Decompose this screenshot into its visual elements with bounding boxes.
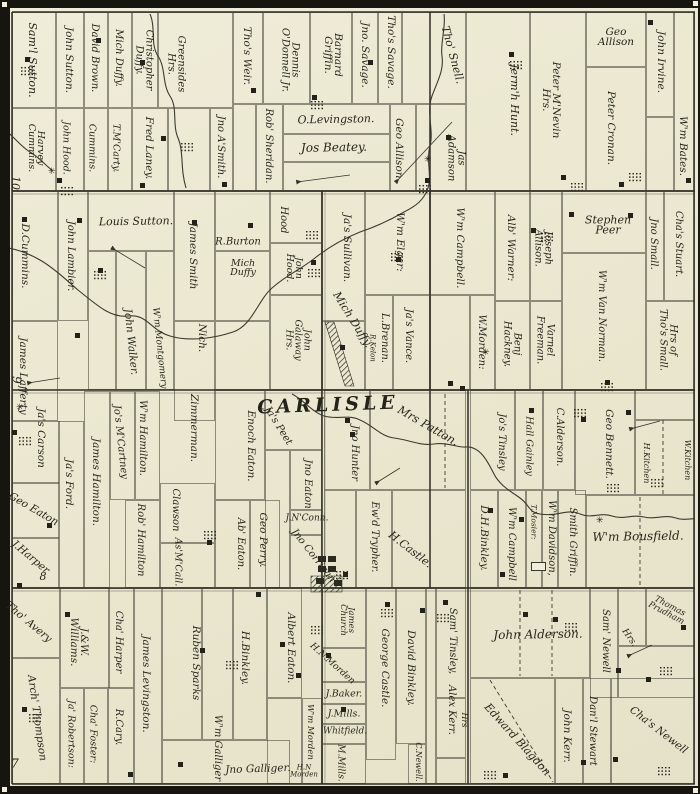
parcel-owner-label: H.Binkley. <box>239 631 249 685</box>
parcel-owner-label: Varnel Freeman. <box>536 316 555 365</box>
parcel-owner-label: David Brown. <box>89 24 99 93</box>
parcel-owner-label: Thomas Prudham <box>647 594 689 627</box>
parcel-owner-label: John Alderson. <box>493 629 582 642</box>
parcel-owner-label: John Walker. <box>122 308 139 375</box>
parcel-owner-label: Dan'l Stewart <box>587 696 597 766</box>
lot-number-label: 7 <box>11 758 19 769</box>
parcel-owner-label: Rob' Hamilton <box>135 504 145 577</box>
parcel-owner-label: Harvey Cummins. <box>27 124 45 172</box>
lot-number-label: 8 <box>40 572 47 582</box>
parcel-owner-label: Hrs. <box>620 628 638 649</box>
parcel-owner-label: Zimmerman. <box>188 394 198 462</box>
parcel-owner-label: Benj Hackney. <box>503 321 522 367</box>
parcel-owner-label: T.Mosier: <box>530 504 537 539</box>
parcel-owner-label: W'm Galliger <box>212 715 222 781</box>
parcel-owner-label: H.Kitchen <box>642 443 650 484</box>
frame-corner-mark <box>2 2 7 7</box>
parcel-owner-label: Barnard Griffin. <box>322 33 342 77</box>
parcel-owner-label: Ja's Ford. <box>63 459 73 509</box>
parcel-owner-label: Ab' Eaton. <box>235 518 245 570</box>
parcel-owner-label: J.Baker. <box>326 689 363 698</box>
parcel-owner-label: Ruben Sparks <box>190 626 200 701</box>
parcel-owner-label: Jno Small. <box>648 218 658 270</box>
parcel-owner-label: Tho' Snell. <box>439 25 464 85</box>
parcel-owner-label: J.N'Conn. <box>286 515 329 524</box>
parcel-owner-label: Peter Cronan. <box>605 91 615 165</box>
parcel-owner-label: Louis Sutton. <box>99 216 174 228</box>
parcel-owner-label: H.N.Morden <box>308 642 356 686</box>
parcel-owner-label: W'm Campbell. <box>454 208 464 289</box>
parcel-owner-label: Hrs of Tho's Small. <box>659 309 678 371</box>
parcel-owner-label: Sam' Tinsley, <box>447 608 457 674</box>
parcel-owner-label: Alex Kerr. <box>446 685 456 735</box>
parcel-owner-label: Joseph Allison. <box>534 229 553 267</box>
parcel-owner-label: Jno Corrigan <box>289 528 336 585</box>
parcel-owner-label: Arch' Thompson <box>25 674 47 761</box>
parcel-owner-label: Mich Duffy. <box>113 29 123 87</box>
parcel-owner-label: Jno Galliger. <box>225 764 291 776</box>
parcel-owner-label: C.Alderson. <box>554 408 564 467</box>
parcel-owner-label: Tho's Weir. <box>241 27 251 85</box>
parcel-owner-label: Geo Perry. <box>257 513 267 568</box>
parcel-owner-label: As'M'Call. <box>173 538 182 587</box>
parcel-owner-label: H.Castle. <box>386 530 433 570</box>
parcel-owner-label: Greensides Hrs. <box>167 36 186 93</box>
parcel-owner-label: James Hamilton. <box>90 438 100 526</box>
parcel-owner-label: Geo Bennett. <box>603 409 613 479</box>
parcel-owner-label: Mich Duffy. <box>331 290 373 349</box>
parcel-owner-label: W'm Davidson, <box>546 500 556 576</box>
parcel-owner-label: James Levingston. <box>140 635 150 732</box>
parcel-owner-label: Sam' Newell <box>600 609 610 673</box>
parcel-owner-label: Clawson <box>170 489 180 532</box>
parcel-owner-label: Ja' Robertson: <box>66 700 75 768</box>
parcel-owner-label: Cha's Newell <box>627 706 688 757</box>
parcel-owner-label: Geo Allison. <box>393 118 403 182</box>
parcel-owner-label: David Binkley. <box>405 630 415 706</box>
parcel-owner-label: W'm Campbell <box>506 507 516 581</box>
parcel-owner-label: W'm Bousfield. <box>592 531 683 544</box>
parcel-owner-label: George Castle. <box>379 628 389 707</box>
parcel-owner-label: W'm Morden <box>306 704 314 760</box>
parcel-owner-label: Smith Griffin. <box>567 507 577 576</box>
parcel-owner-label: Mrs Patton. <box>396 404 460 448</box>
frame-corner-mark <box>693 1 698 6</box>
parcel-owner-label: W'm Bates. <box>677 116 687 176</box>
parcel-owner-label: Ja's Sullivan. <box>341 214 351 282</box>
parcel-owner-label: Jo's M'Cartney <box>111 404 128 479</box>
parcel-owner-label: J.&W. Williams. <box>68 618 88 667</box>
parcel-owner-label: Albert Eaton. <box>285 612 295 683</box>
parcel-owner-label: Hrs <box>460 713 468 728</box>
parcel-owner-label: Jos Beatey. <box>301 142 367 155</box>
parcel-owner-label: Geo Allison <box>598 28 634 48</box>
parcel-owner-label: W'm Montgomery <box>150 307 167 389</box>
map-canvas: ✳✳✳✳✳ CARLISLE Sam'l Sutton.John Sutton.… <box>10 8 698 786</box>
parcel-owner-label: Rob' Sheridan. <box>263 108 273 183</box>
parcel-owner-label: Hood <box>278 206 288 233</box>
parcel-owner-label: D.H.Binkley. <box>478 505 488 571</box>
parcel-owner-label: James Church <box>339 604 355 636</box>
parcel-owner-label: Edward Blagdon <box>482 702 552 778</box>
parcel-owner-label: R.Kelon <box>369 334 376 362</box>
frame-corner-mark <box>693 788 698 793</box>
parcel-owner-label: Dennis O'Donnell Jr. <box>281 28 300 92</box>
parcel-owner-label: John Galaway Hrs. <box>284 319 311 360</box>
parcel-owner-label: Nich. <box>196 324 206 353</box>
parcel-owner-label: Hall Gainley <box>524 416 533 475</box>
parcel-owner-label: D.Cummins. <box>19 224 29 289</box>
parcel-owner-label: Geo Eaton <box>6 492 59 528</box>
parcel-owner-label: T.M'Carty. <box>111 124 120 173</box>
parcel-owner-label: John Irvine. <box>655 31 665 93</box>
parcel-owner-label: Jno. Savage. <box>359 22 369 88</box>
parcel-owner-label: W.Morden: <box>476 315 486 370</box>
parcel-owner-label: H.N Morden <box>290 764 318 777</box>
parcel-owner-label: R.Cary. <box>113 709 123 746</box>
parcel-owner-label: Ja's Vance. <box>403 309 413 363</box>
lot-number-label: 9 <box>10 376 21 384</box>
parcel-owner-label: Tho' Avery <box>3 601 53 645</box>
parcel-owner-label: Jno A'Smith. <box>215 116 225 179</box>
parcel-owner-label: L.Brenan. <box>379 313 389 363</box>
parcel-owner-label: Cummins. <box>87 124 96 172</box>
parcel-owner-label: Cha' Harper <box>113 611 123 674</box>
parcel-owner-label: Alb' Warner: <box>505 215 515 282</box>
parcel-owner-label: W.Kitchen <box>683 440 691 481</box>
parcel-owner-label: James Smith <box>187 223 197 290</box>
frame-corner-mark <box>2 787 7 792</box>
parcel-owner-label: W'm Van Norman. <box>596 270 606 362</box>
parcel-owner-label: Mich Duffy <box>230 259 256 277</box>
parcel-owner-label: O.Levingston. <box>298 114 375 126</box>
parcel-owner-label: Peter M'Nevin Hrs. <box>540 62 560 139</box>
parcel-owner-label: Ja's Carson <box>35 408 45 468</box>
parcel-owner-label: W'm Hamilton. <box>137 400 147 476</box>
parcel-owner-label: Tho's Savage. <box>385 15 395 89</box>
parcel-owner-label: R.Burton <box>215 237 261 247</box>
parcel-owner-label: Jerm'h Hunt. <box>509 64 519 136</box>
town-name-label: CARLISLE <box>257 392 399 419</box>
parcel-owner-label: Christopher Duffy. <box>135 30 154 91</box>
parcel-owner-label: John Hood. <box>285 254 303 283</box>
parcel-owner-label: John Kerr. <box>561 709 571 762</box>
parcel-owner-label: Stephen Peer <box>585 216 631 237</box>
parcel-owner-label: John Hood. <box>61 121 70 175</box>
parcel-owner-label: Ew'd Trypher. <box>369 502 379 573</box>
parcel-owner-label: Cha's Stuart. <box>673 211 683 277</box>
parcel-owner-label: Jno Hunter <box>349 425 359 481</box>
parcel-labels-layer: CARLISLE Sam'l Sutton.John Sutton.David … <box>10 8 698 786</box>
parcel-owner-label: Jno Eaton <box>302 459 312 508</box>
parcel-owner-label: W'm Elgar: <box>394 212 404 272</box>
parcel-owner-label: Jo's Tinsley <box>496 413 506 470</box>
parcel-owner-label: M.Mills. <box>336 744 345 781</box>
lot-number-label: 10 <box>10 176 20 190</box>
plat-map-page: ✳✳✳✳✳ CARLISLE Sam'l Sutton.John Sutton.… <box>0 0 700 794</box>
parcel-owner-label: John Lambier. <box>65 221 75 292</box>
parcel-owner-label: J.Mills. <box>328 709 361 718</box>
parcel-owner-label: Whitfield. <box>323 728 367 737</box>
parcel-owner-label: Fred Laney. <box>143 117 153 180</box>
parcel-owner-label: Cha' Foster: <box>88 705 97 764</box>
parcel-owner-label: Enoch Eaton. <box>245 410 255 481</box>
parcel-owner-label: John Sutton. <box>63 27 73 93</box>
parcel-owner-label: Sam'l Sutton. <box>27 22 37 97</box>
parcel-owner-label: C.Newell. <box>414 742 422 781</box>
parcel-owner-label: Jas Adamson <box>447 135 466 182</box>
